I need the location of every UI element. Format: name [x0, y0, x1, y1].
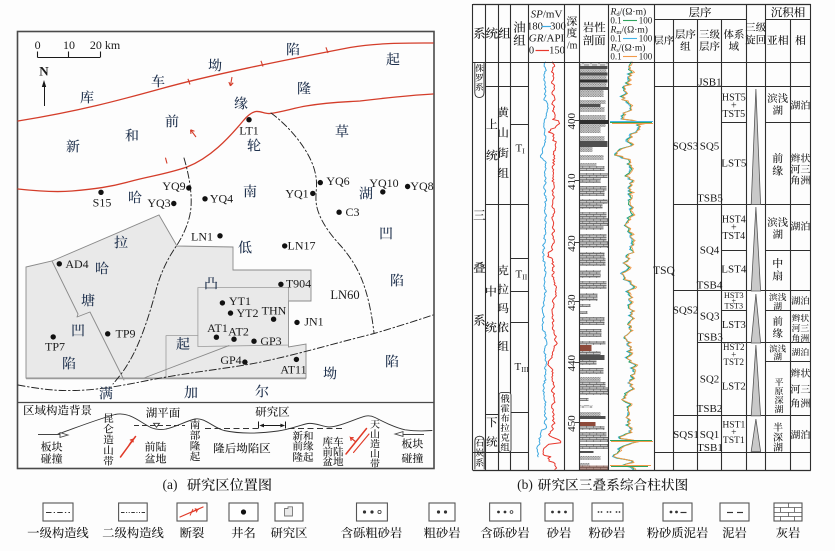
svg-text:0.1: 0.1: [610, 34, 621, 44]
svg-text:YQ1: YQ1: [285, 187, 308, 201]
svg-text:YQ3: YQ3: [147, 196, 170, 210]
svg-text:SQ5: SQ5: [700, 141, 720, 153]
svg-text:430: 430: [566, 294, 578, 311]
svg-text:0.1: 0.1: [610, 16, 621, 26]
svg-text:YT2: YT2: [237, 306, 259, 320]
svg-text:SQ2: SQ2: [700, 374, 720, 386]
svg-text:440: 440: [566, 354, 578, 371]
svg-text:LST5: LST5: [721, 158, 747, 170]
svg-text:100: 100: [639, 16, 653, 26]
svg-text:TP7: TP7: [45, 340, 65, 354]
svg-text:LN60: LN60: [330, 288, 359, 302]
svg-text:LT1: LT1: [239, 124, 259, 138]
svg-text:LST4: LST4: [721, 264, 747, 276]
svg-text:TP9: TP9: [115, 327, 135, 341]
svg-text:TSQ: TSQ: [653, 265, 675, 277]
svg-text:TSB1: TSB1: [697, 442, 723, 454]
svg-text:300: 300: [550, 22, 566, 33]
svg-text:400: 400: [566, 113, 578, 130]
svg-text:TSB3: TSB3: [697, 332, 723, 344]
svg-text:AT11: AT11: [280, 363, 306, 377]
svg-text:SQ1: SQ1: [700, 429, 720, 441]
svg-text:GP4: GP4: [220, 353, 241, 367]
svg-text:410: 410: [566, 173, 578, 190]
svg-text:TST2: TST2: [724, 357, 745, 367]
svg-text:150: 150: [549, 46, 565, 57]
svg-text:YQ4: YQ4: [210, 192, 233, 206]
svg-text:T904: T904: [286, 277, 311, 291]
svg-text:S15: S15: [93, 196, 112, 210]
svg-text:SQ3: SQ3: [700, 311, 720, 323]
svg-text:0: 0: [35, 38, 41, 52]
svg-text:AT2: AT2: [228, 325, 249, 339]
svg-text:YQ6: YQ6: [326, 174, 349, 188]
svg-text:TST5: TST5: [722, 109, 745, 120]
svg-text:AD4: AD4: [65, 257, 88, 271]
svg-text:SQS1: SQS1: [673, 429, 699, 441]
svg-text:GP3: GP3: [260, 334, 281, 348]
svg-text:LN1: LN1: [191, 230, 213, 244]
svg-text:LST3: LST3: [722, 320, 746, 331]
svg-text:TST4: TST4: [722, 231, 745, 242]
svg-text:AT1: AT1: [207, 321, 228, 335]
svg-text:TSB4: TSB4: [697, 280, 723, 292]
svg-text:/m: /m: [567, 40, 578, 51]
svg-text:180: 180: [527, 22, 543, 33]
svg-text:LN17: LN17: [288, 239, 316, 253]
svg-text:100: 100: [639, 34, 653, 44]
svg-text:TST3: TST3: [724, 302, 743, 311]
svg-text:SQS2: SQS2: [673, 305, 699, 317]
svg-text:450: 450: [566, 415, 578, 432]
svg-text:THN: THN: [262, 304, 287, 318]
svg-text:(a): (a): [163, 477, 178, 492]
svg-text:GR/API: GR/API: [529, 33, 565, 45]
svg-text:YQ10: YQ10: [369, 176, 398, 190]
svg-text:(b): (b): [517, 477, 533, 492]
svg-text:TSB2: TSB2: [697, 403, 723, 415]
svg-text:YQ8: YQ8: [410, 179, 433, 193]
svg-text:20 km: 20 km: [90, 38, 121, 52]
svg-text:N: N: [39, 63, 49, 78]
svg-text:0.1: 0.1: [610, 52, 621, 62]
svg-text:LST2: LST2: [722, 381, 746, 392]
svg-text:C3: C3: [345, 205, 359, 219]
svg-text:SQ4: SQ4: [700, 245, 720, 257]
svg-text:TSB5: TSB5: [697, 193, 723, 205]
svg-text:100: 100: [639, 52, 653, 62]
svg-text:YQ9: YQ9: [162, 179, 185, 193]
svg-text:TST1: TST1: [723, 435, 745, 446]
svg-text:0: 0: [529, 46, 534, 57]
svg-text:JSB1: JSB1: [698, 77, 721, 89]
svg-text:10: 10: [63, 38, 75, 52]
svg-text:420: 420: [566, 235, 578, 252]
svg-text:SQS3: SQS3: [673, 141, 699, 153]
svg-text:JN1: JN1: [304, 315, 323, 329]
svg-text:SP/mV: SP/mV: [531, 9, 563, 21]
